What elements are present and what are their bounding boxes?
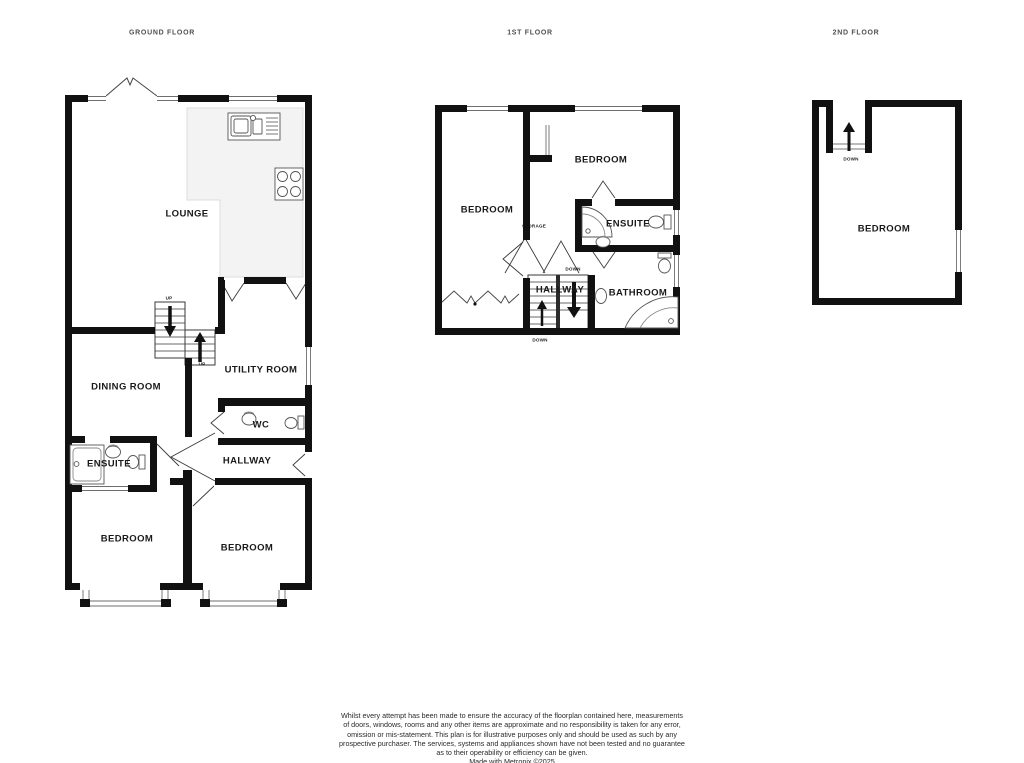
ensuite-basin-icon — [106, 445, 121, 458]
room-label-bedroom-1r: BEDROOM — [575, 155, 627, 166]
second-floor-title: 2ND FLOOR — [833, 30, 880, 37]
walls — [812, 100, 962, 305]
room-label-bedroom-gl: BEDROOM — [101, 534, 153, 545]
room-label-bedroom-2nd: BEDROOM — [858, 224, 910, 235]
disclaimer-line: omission or mis-statement. This plan is … — [339, 730, 685, 739]
disclaimer-line: prospective purchaser. The services, sys… — [339, 739, 685, 748]
room-label-utility: UTILITY ROOM — [225, 365, 298, 376]
bathroom-basin-icon — [595, 289, 606, 304]
bay-window-left — [80, 590, 171, 607]
ensuite-basin-icon — [596, 236, 610, 247]
wc-toilet-icon — [285, 416, 304, 429]
stair-label-down2: DOWN — [532, 338, 547, 343]
staircase-ground — [155, 302, 215, 365]
room-label-bathroom: BATHROOM — [609, 288, 667, 299]
windows — [955, 230, 962, 272]
metropix-credit: Made with Metropix ©2025 — [339, 757, 685, 763]
stair-label-up1: UP — [166, 296, 173, 301]
room-label-hallway-ground: HALLWAY — [223, 456, 271, 467]
room-label-bedroom-1l: BEDROOM — [461, 205, 513, 216]
kitchen-sink-icon — [228, 113, 280, 140]
stair-label-down1: DOWN — [565, 267, 580, 272]
disclaimer-line: of doors, windows, rooms and any other i… — [339, 720, 685, 729]
wardrobe-zigzag — [441, 291, 519, 306]
hob-icon — [275, 168, 303, 200]
room-label-bedroom-gr: BEDROOM — [221, 543, 273, 554]
stair-label-up2: UP — [199, 362, 206, 367]
bathroom-corner-shower-icon — [625, 297, 678, 328]
room-label-ensuite-first: ENSUITE — [606, 219, 650, 230]
ground-floor-title: GROUND FLOOR — [129, 30, 195, 37]
disclaimer-line: as to their operability or efficiency ca… — [339, 748, 685, 757]
second-floor-plan — [812, 100, 962, 315]
disclaimer-text: Whilst every attempt has been made to en… — [339, 711, 685, 763]
disclaimer-line: Whilst every attempt has been made to en… — [339, 711, 685, 720]
bathroom-toilet-icon — [658, 253, 671, 273]
floorplan-page: GROUND FLOOR 1ST FLOOR 2ND FLOOR — [0, 0, 1024, 763]
room-label-lounge: LOUNGE — [165, 209, 208, 220]
ensuite-toilet-icon — [649, 215, 672, 229]
first-floor-title: 1ST FLOOR — [507, 30, 553, 37]
bay-opening — [106, 78, 157, 96]
staircase-second — [833, 122, 865, 151]
room-label-ensuite-ground: ENSUITE — [87, 459, 131, 470]
windows — [467, 105, 680, 287]
bay-window-right — [200, 590, 287, 607]
room-label-dining: DINING ROOM — [91, 382, 161, 393]
stair-label-down-2nd: DOWN — [843, 157, 858, 162]
room-label-hallway-first: HALLWAY — [536, 285, 584, 296]
room-label-wc: WC — [253, 420, 270, 431]
